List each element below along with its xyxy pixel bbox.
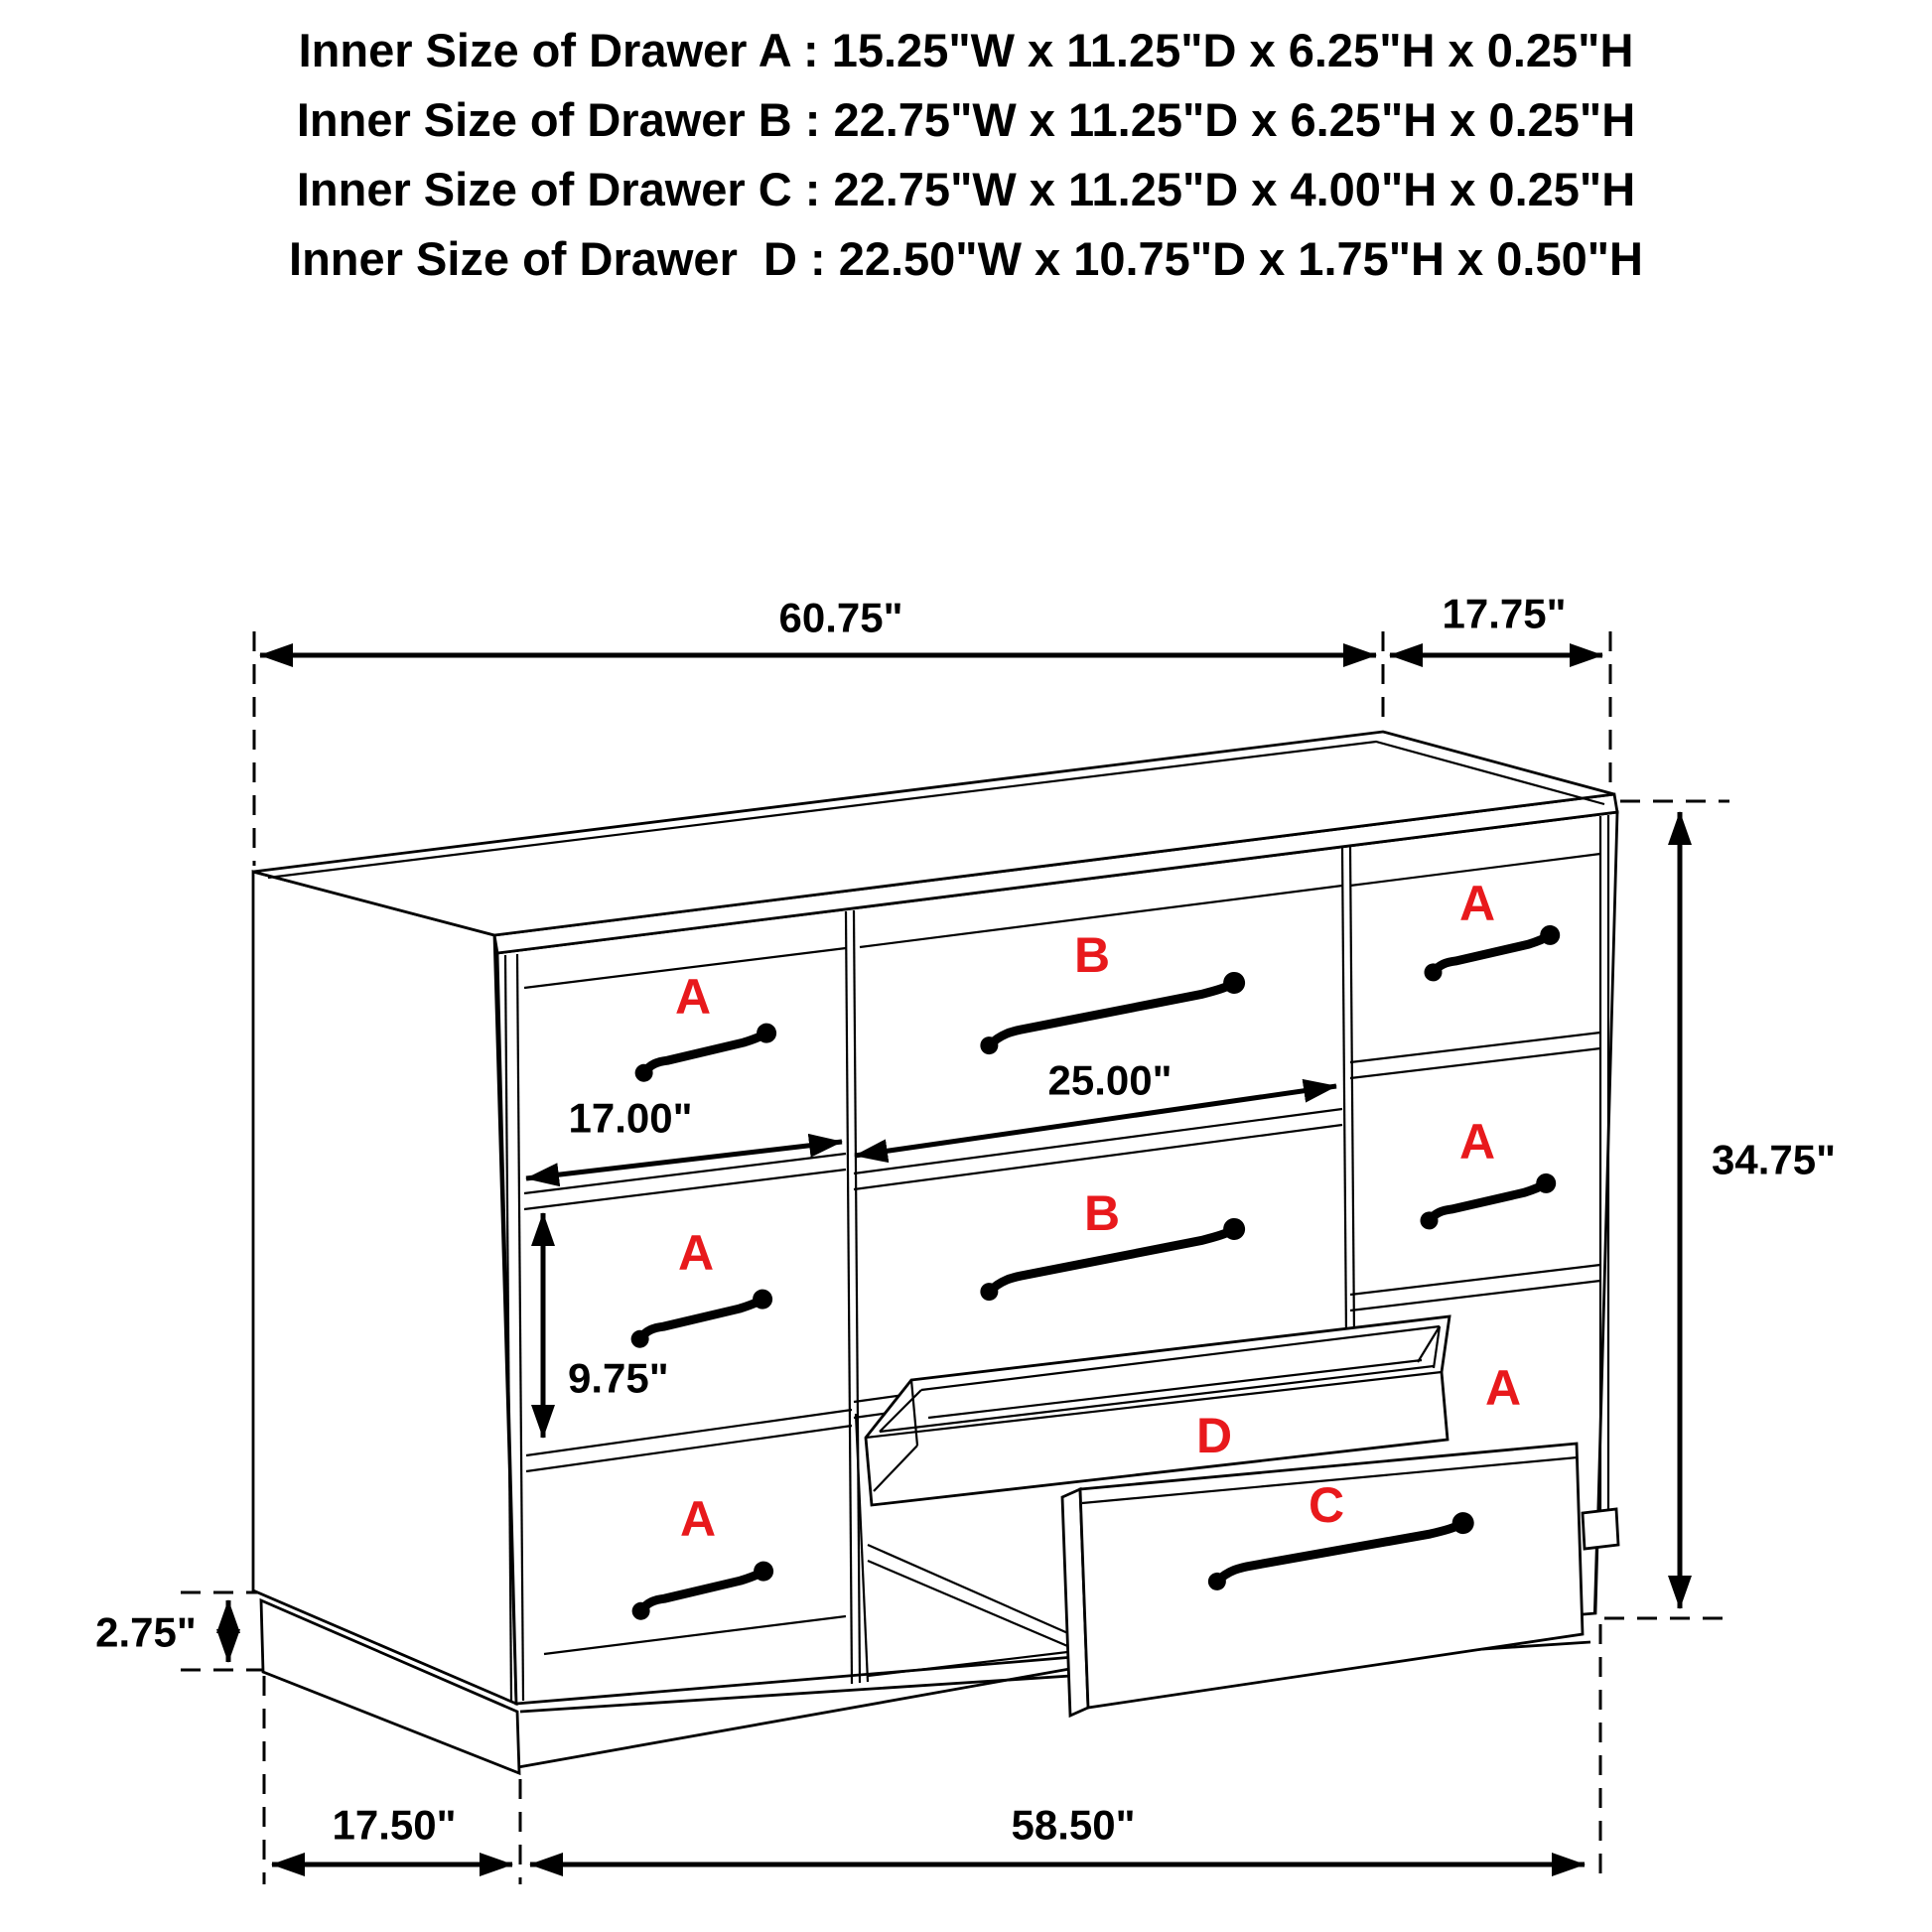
label-a-right-middle: A [1459, 1114, 1495, 1170]
label-a-left-bottom: A [680, 1491, 716, 1547]
label-a-right-bottom: A [1485, 1360, 1521, 1416]
label-b-bottom: B [1084, 1185, 1120, 1241]
dim-top-depth: 17.75" [1442, 591, 1566, 637]
label-d-tray: D [1196, 1408, 1232, 1463]
dim-base-front-width: 58.50" [1011, 1802, 1135, 1849]
side-panel [253, 872, 516, 1704]
dim-overall-height: 34.75" [1712, 1137, 1836, 1183]
label-a-left-top: A [675, 969, 711, 1025]
label-a-right-top: A [1459, 876, 1495, 931]
dim-base-side-depth: 17.50" [332, 1802, 456, 1849]
label-a-left-middle: A [678, 1225, 714, 1281]
label-b-top: B [1074, 927, 1110, 983]
dim-top-width: 60.75" [778, 595, 902, 641]
dim-drawer-b-width: 25.00" [1047, 1057, 1172, 1104]
dresser-dimension-sheet: Inner Size of Drawer A : 15.25"W x 11.25… [0, 0, 1932, 1932]
dim-drawer-a-height: 9.75" [568, 1355, 669, 1402]
label-c-drawer: C [1309, 1477, 1344, 1533]
dresser-line-drawing: 60.75" 17.75" 34.75" 25.00" 17.00" 9.75"… [0, 0, 1932, 1932]
dim-base-height: 2.75" [95, 1609, 197, 1656]
dim-drawer-a-width: 17.00" [568, 1095, 692, 1142]
